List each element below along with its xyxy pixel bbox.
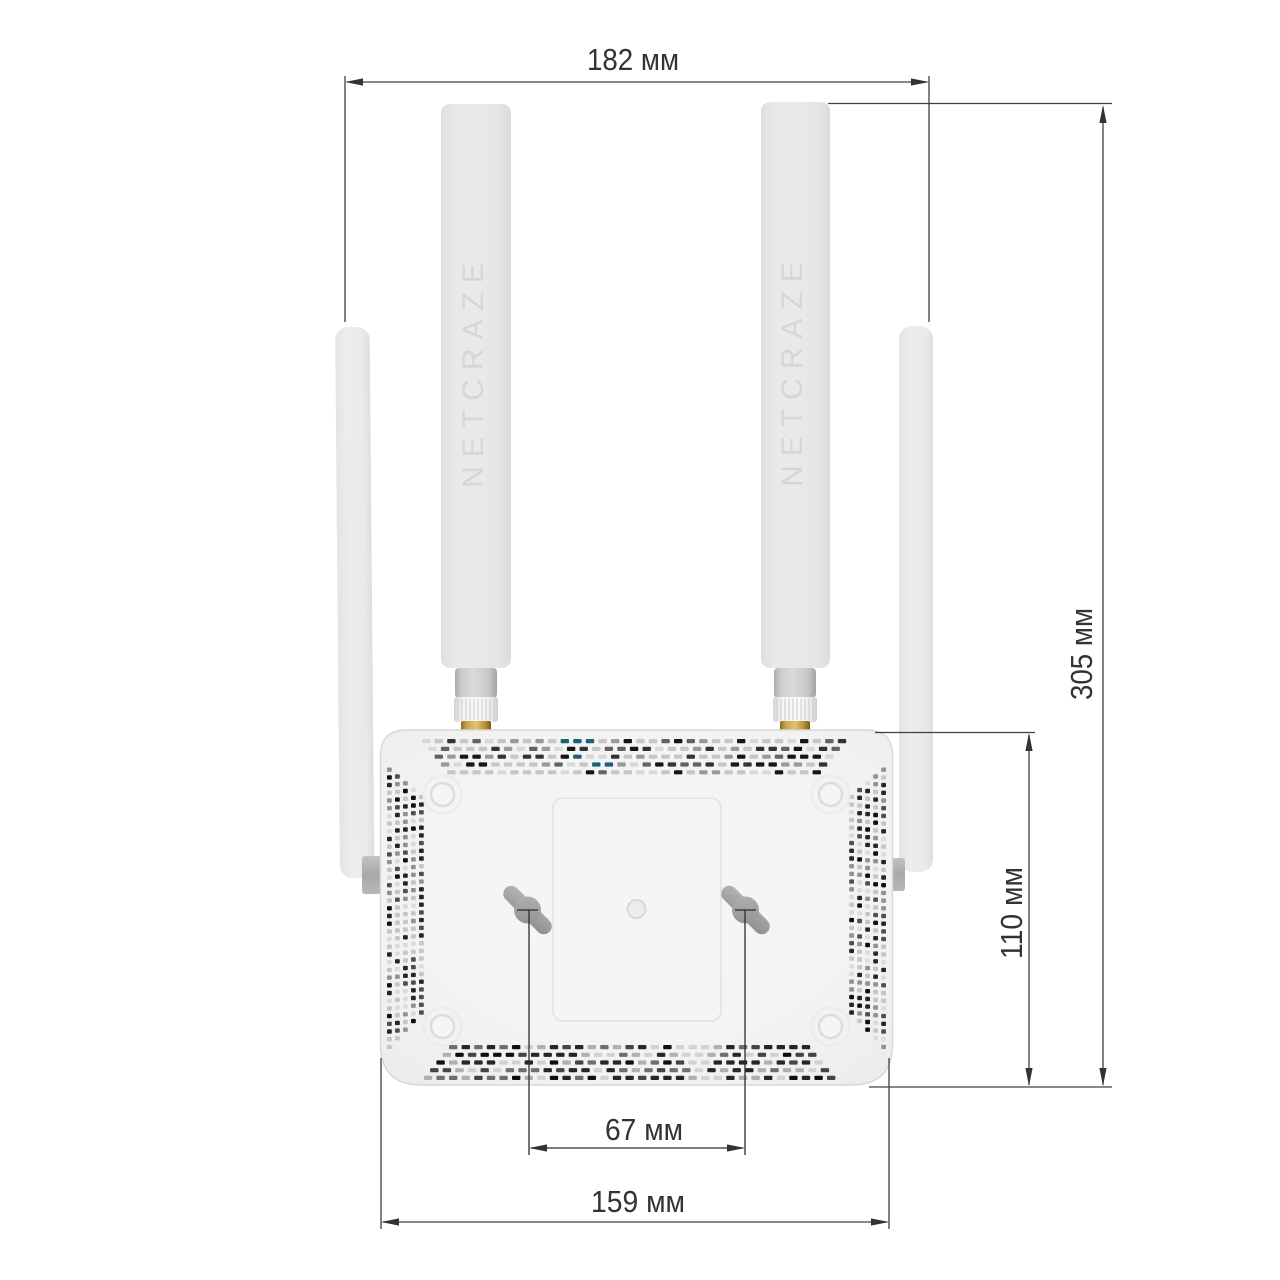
svg-text:305 мм: 305 мм xyxy=(1064,608,1099,700)
svg-text:182 мм: 182 мм xyxy=(587,42,679,77)
svg-text:110 мм: 110 мм xyxy=(994,867,1029,959)
svg-text:159 мм: 159 мм xyxy=(591,1184,685,1219)
svg-text:67 мм: 67 мм xyxy=(605,1112,683,1147)
svg-text:NETCRAZE: NETCRAZE xyxy=(776,253,809,487)
svg-text:NETCRAZE: NETCRAZE xyxy=(457,254,490,488)
